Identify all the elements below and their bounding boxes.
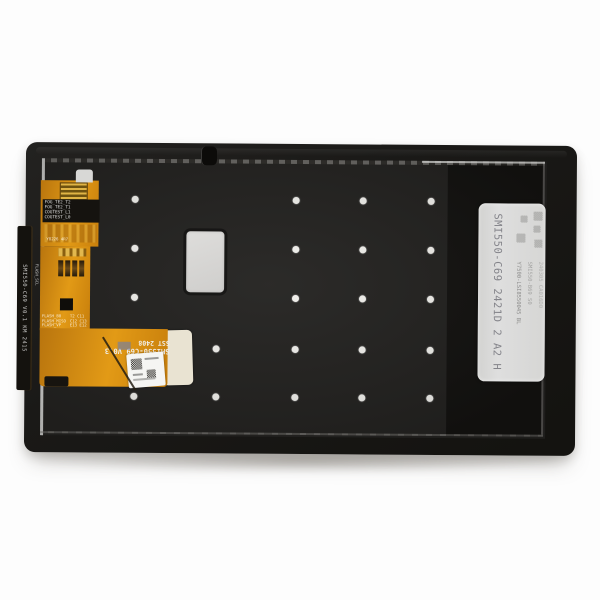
right-pin-labels: T2 C11 C12 C13 E13 E12 (70, 314, 87, 328)
vertical-trace-label: FLASH_SCL (34, 264, 39, 286)
lcd-module-panel: 240305 CA016D0 SMI550-B69 S0 Y7500-LSI85… (24, 142, 577, 456)
flex-cable-assembly: SMI550-C69 V0.1 KM 2415 FOG_TE2_T2 FOG_T… (24, 142, 577, 456)
resistor-component (79, 260, 84, 276)
cable-end-strip: SMI550-C69 V0.1 KM 2415 (16, 226, 31, 390)
sticker-text-line (133, 377, 155, 381)
resistor-component (65, 260, 70, 276)
blue-ink-mark (118, 342, 131, 350)
left-pin-labels: FLASH_B0 FLASH_MISO FLASH_VP (42, 314, 66, 328)
connector-tab (76, 169, 93, 182)
product-photo-stage: 240305 CA016D0 SMI550-B69 S0 Y7500-LSI85… (0, 0, 600, 600)
cable-lower-body: SMI550-C69 V0.3 SST 2408 (39, 328, 167, 387)
solder-pad-row (58, 248, 86, 256)
cable-mid-body: FLASH_SCL FLASH_B0 FLASH_MISO FLASH_VP T… (40, 246, 91, 330)
cable-bottom-connector (44, 376, 68, 386)
resistor-component (58, 260, 63, 276)
sticker-text-line (133, 373, 143, 376)
component-row-label: Y8226 4R7 (46, 236, 68, 241)
qr-code-icon (131, 358, 143, 370)
test-pad-label-block: FOG_TE2_T2 FOG_TE2_T1 COGTEST_L1 COGTEST… (43, 199, 100, 222)
cable-end-strip-text: SMI550-C69 V0.1 KM 2415 (16, 226, 31, 390)
component-strip: Y8226 4R7 (44, 224, 96, 242)
resistor-component (72, 260, 77, 276)
test-pad-label: COGTEST_L0 (45, 215, 100, 220)
sticker-text-line (145, 357, 159, 360)
ic-chip (60, 298, 73, 310)
